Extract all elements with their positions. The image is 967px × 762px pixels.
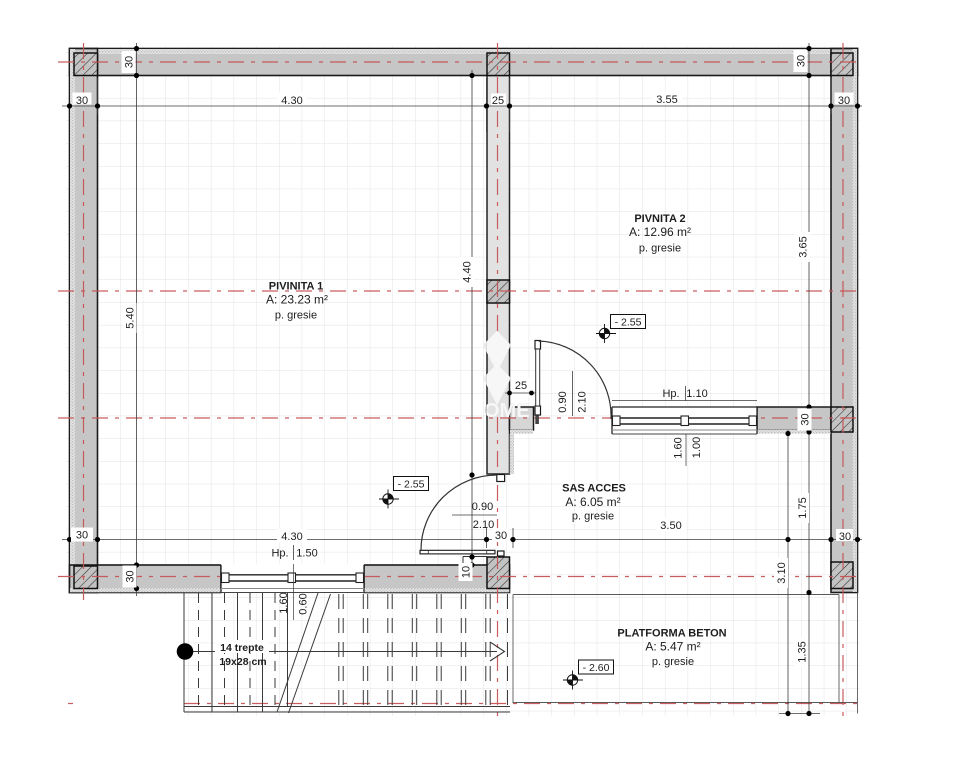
svg-text:PLATFORMA BETON: PLATFORMA BETON <box>617 628 726 640</box>
svg-text:1.35: 1.35 <box>797 641 809 662</box>
svg-text:Hp.: Hp. <box>662 388 679 400</box>
svg-text:4.40: 4.40 <box>462 261 474 282</box>
svg-text:1.60: 1.60 <box>278 592 290 613</box>
svg-text:19x28 cm: 19x28 cm <box>219 656 266 668</box>
svg-text:- 2.55: - 2.55 <box>615 317 642 329</box>
svg-text:1.60: 1.60 <box>673 437 685 458</box>
svg-text:5.40: 5.40 <box>125 307 137 328</box>
svg-text:3.10: 3.10 <box>776 562 788 583</box>
svg-text:0.90: 0.90 <box>557 391 569 412</box>
svg-text:A: 5.47 m²: A: 5.47 m² <box>645 640 700 654</box>
svg-text:- 2.55: - 2.55 <box>398 479 425 491</box>
svg-text:1.75: 1.75 <box>797 497 809 518</box>
svg-text:3.65: 3.65 <box>798 236 810 257</box>
svg-text:25: 25 <box>515 380 527 392</box>
svg-text:A: 12.96 m²: A: 12.96 m² <box>629 225 691 239</box>
svg-text:A: 23.23 m²: A: 23.23 m² <box>266 293 328 307</box>
svg-text:30: 30 <box>495 530 507 542</box>
svg-text:30: 30 <box>76 530 88 542</box>
svg-text:1.10: 1.10 <box>686 388 707 400</box>
svg-text:30: 30 <box>124 56 136 68</box>
svg-text:p. gresie: p. gresie <box>652 656 694 668</box>
svg-text:A: 6.05 m²: A: 6.05 m² <box>565 495 620 509</box>
svg-text:14 trepte: 14 trepte <box>220 642 264 654</box>
svg-text:1.00: 1.00 <box>691 437 703 458</box>
svg-text:3.55: 3.55 <box>656 94 677 106</box>
svg-text:p. gresie: p. gresie <box>275 310 317 322</box>
svg-text:30: 30 <box>800 413 812 425</box>
svg-text:2.10: 2.10 <box>577 391 589 412</box>
svg-text:2.10: 2.10 <box>473 519 494 531</box>
svg-text:30: 30 <box>76 95 88 107</box>
svg-text:OME: OME <box>484 400 530 422</box>
svg-text:25: 25 <box>492 95 504 107</box>
svg-text:0.60: 0.60 <box>298 593 310 614</box>
svg-text:30: 30 <box>125 570 137 582</box>
svg-text:0.90: 0.90 <box>472 501 493 513</box>
svg-text:1.50: 1.50 <box>296 548 317 560</box>
svg-text:SAS ACCES: SAS ACCES <box>562 483 626 495</box>
svg-text:3.50: 3.50 <box>660 520 681 532</box>
svg-text:p. gresie: p. gresie <box>639 243 681 255</box>
svg-text:30: 30 <box>839 531 851 543</box>
svg-text:30: 30 <box>796 55 808 67</box>
svg-text:Hp.: Hp. <box>271 548 288 560</box>
svg-text:p. gresie: p. gresie <box>572 511 614 523</box>
svg-text:4.30: 4.30 <box>281 531 302 543</box>
svg-text:PIVNITA 2: PIVNITA 2 <box>634 213 685 225</box>
svg-text:10: 10 <box>461 566 473 578</box>
svg-text:4.30: 4.30 <box>281 95 302 107</box>
svg-text:- 2.60: - 2.60 <box>583 662 610 674</box>
svg-text:PIVINITA 1: PIVINITA 1 <box>269 281 323 293</box>
svg-text:30: 30 <box>838 95 850 107</box>
